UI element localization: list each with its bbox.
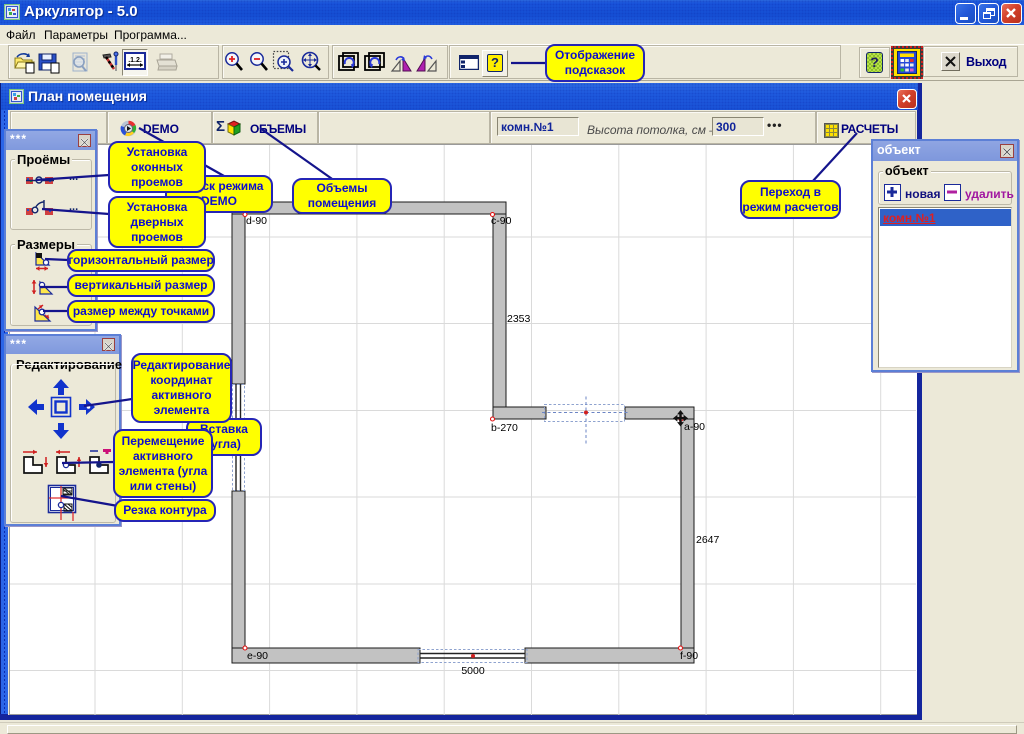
svg-text:f-90: f-90 [680, 650, 698, 662]
svg-text:a-90: a-90 [684, 421, 705, 433]
svg-text:b-270: b-270 [491, 422, 518, 434]
svg-text:d-90: d-90 [246, 215, 267, 227]
svg-text:c-90: c-90 [491, 215, 512, 227]
svg-text:.1.2.: .1.2. [128, 57, 142, 64]
svg-text:2353: 2353 [507, 313, 531, 325]
svg-text:5000: 5000 [461, 665, 485, 677]
svg-text:2647: 2647 [696, 534, 720, 546]
svg-text:e-90: e-90 [247, 650, 268, 662]
